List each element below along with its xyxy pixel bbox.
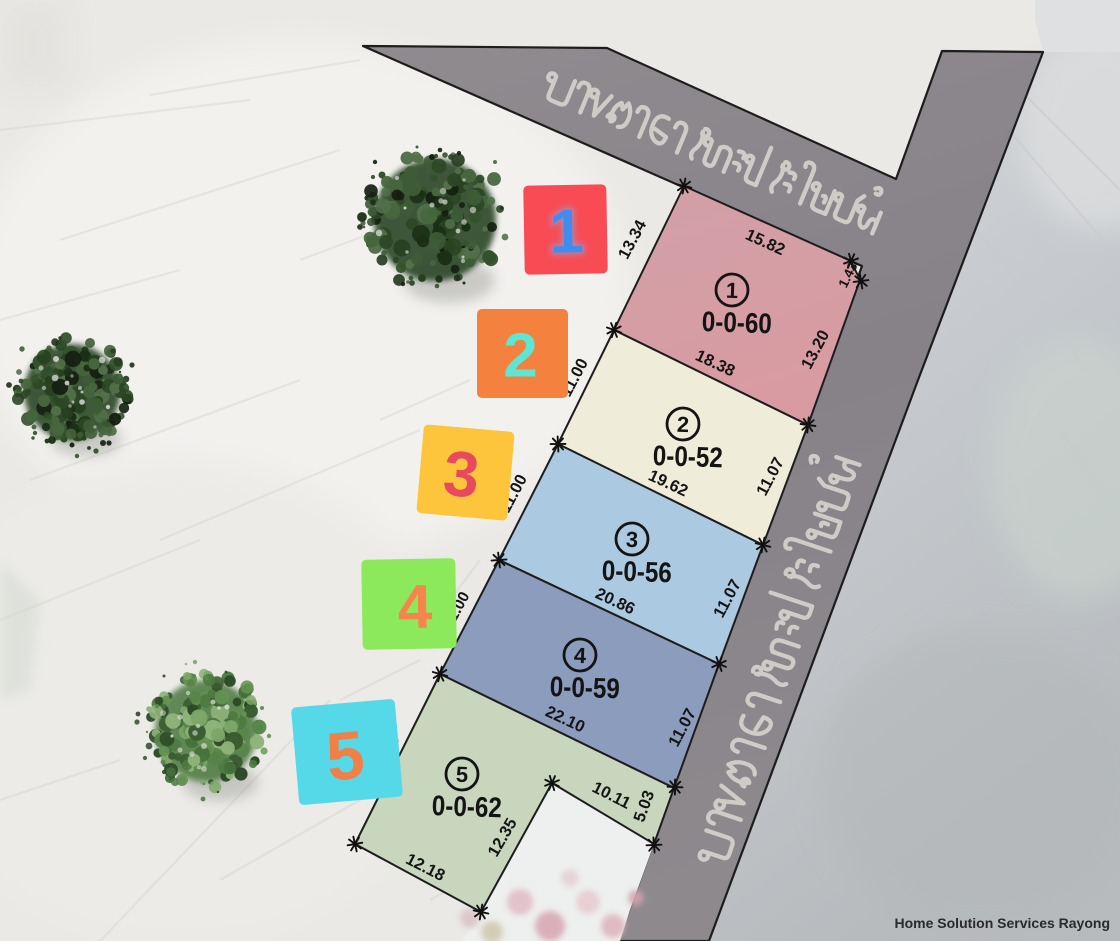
svg-text:Home Solution Services Rayong: Home Solution Services Rayong — [895, 915, 1111, 931]
svg-text:3: 3 — [440, 437, 482, 512]
svg-text:2: 2 — [503, 322, 537, 391]
svg-text:0-0-62: 0-0-62 — [431, 790, 502, 824]
svg-text:5: 5 — [455, 762, 468, 787]
svg-text:4: 4 — [397, 573, 433, 643]
svg-text:5: 5 — [323, 717, 367, 796]
svg-text:1: 1 — [725, 278, 738, 303]
svg-text:4: 4 — [573, 643, 587, 668]
svg-text:1: 1 — [549, 197, 585, 267]
svg-text:3: 3 — [625, 527, 638, 552]
svg-text:0-0-60: 0-0-60 — [701, 306, 772, 340]
svg-text:0-0-59: 0-0-59 — [549, 671, 620, 705]
svg-text:0-0-52: 0-0-52 — [652, 440, 723, 474]
svg-text:0-0-56: 0-0-56 — [601, 555, 672, 589]
svg-text:2: 2 — [676, 412, 689, 437]
